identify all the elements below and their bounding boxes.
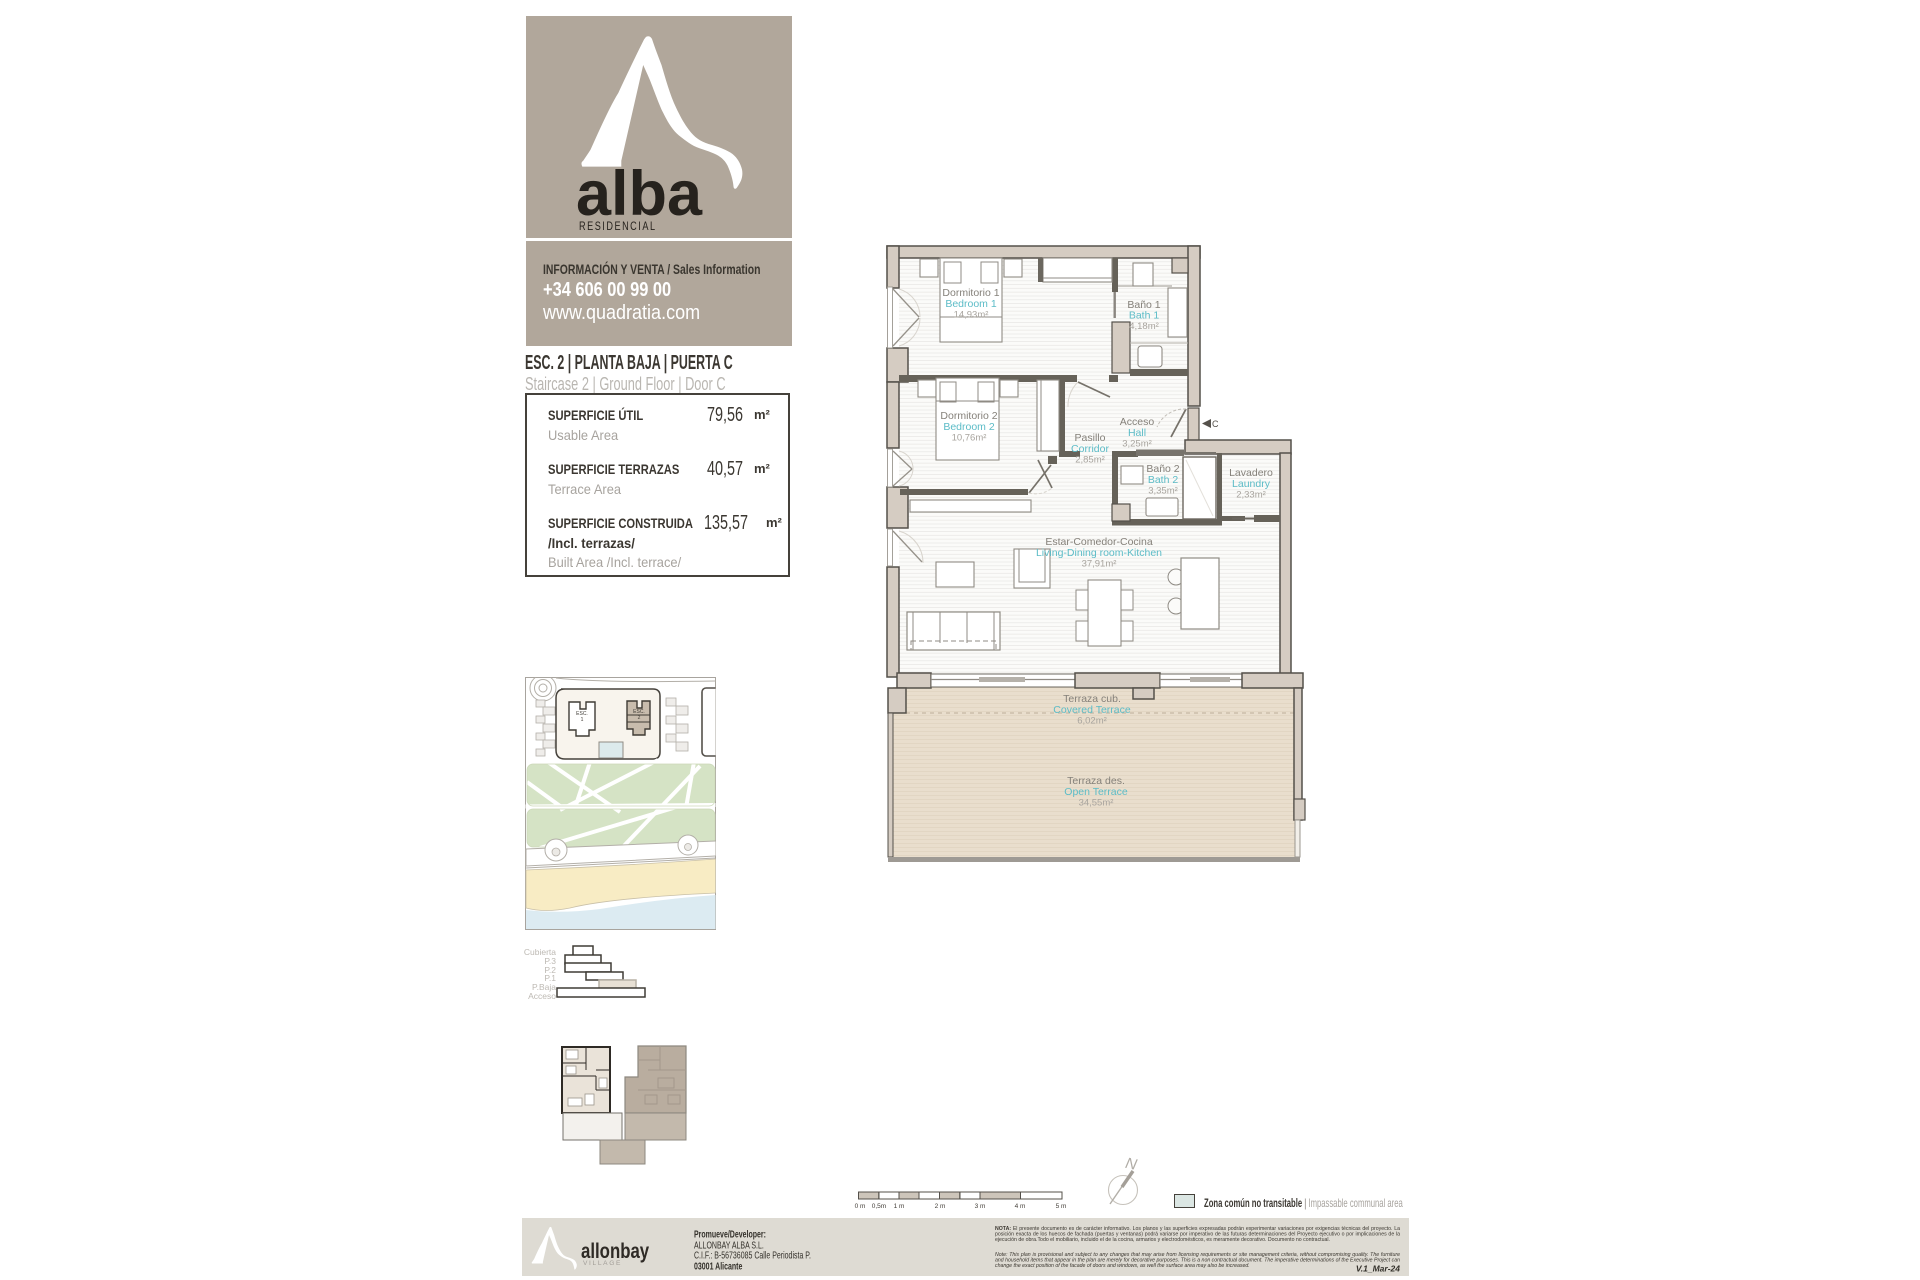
svg-text:6,02m²: 6,02m² bbox=[1077, 716, 1107, 727]
svg-text:1 m: 1 m bbox=[894, 1203, 905, 1210]
svg-text:N: N bbox=[1124, 1155, 1139, 1174]
svg-text:2,85m²: 2,85m² bbox=[1075, 455, 1105, 466]
svg-text:Laundry: Laundry bbox=[1232, 478, 1271, 490]
svg-text:3,25m²: 3,25m² bbox=[1122, 439, 1152, 450]
svg-text:37,91m²: 37,91m² bbox=[1082, 559, 1117, 570]
svg-text:Bath 2: Bath 2 bbox=[1148, 474, 1179, 486]
svg-text:Bedroom 2: Bedroom 2 bbox=[943, 421, 995, 433]
svg-text:0 m: 0 m bbox=[855, 1203, 866, 1210]
svg-text:Living-Dining room-Kitchen: Living-Dining room-Kitchen bbox=[1036, 547, 1162, 559]
svg-text:2: 2 bbox=[638, 715, 641, 721]
svg-text:3,35m²: 3,35m² bbox=[1148, 486, 1178, 497]
svg-text:Corridor: Corridor bbox=[1071, 443, 1109, 455]
svg-text:Covered Terrace: Covered Terrace bbox=[1053, 704, 1131, 716]
svg-text:4,18m²: 4,18m² bbox=[1129, 321, 1159, 332]
svg-text:Hall: Hall bbox=[1128, 427, 1146, 439]
svg-text:C: C bbox=[1212, 419, 1219, 429]
svg-text:14,93m²: 14,93m² bbox=[954, 310, 989, 321]
svg-text:5 m: 5 m bbox=[1056, 1203, 1067, 1210]
svg-text:0,5m: 0,5m bbox=[872, 1203, 886, 1210]
svg-text:3 m: 3 m bbox=[975, 1203, 986, 1210]
svg-text:2 m: 2 m bbox=[935, 1203, 946, 1210]
svg-text:34,55m²: 34,55m² bbox=[1079, 798, 1114, 809]
svg-text:Bath 1: Bath 1 bbox=[1129, 310, 1160, 322]
svg-text:Open Terrace: Open Terrace bbox=[1064, 786, 1128, 798]
svg-text:2,33m²: 2,33m² bbox=[1236, 490, 1266, 501]
svg-text:10,76m²: 10,76m² bbox=[952, 433, 987, 444]
svg-text:Bedroom 1: Bedroom 1 bbox=[945, 298, 997, 310]
svg-text:1: 1 bbox=[581, 717, 584, 723]
svg-text:Acceso: Acceso bbox=[528, 991, 556, 1001]
svg-text:4 m: 4 m bbox=[1015, 1203, 1026, 1210]
